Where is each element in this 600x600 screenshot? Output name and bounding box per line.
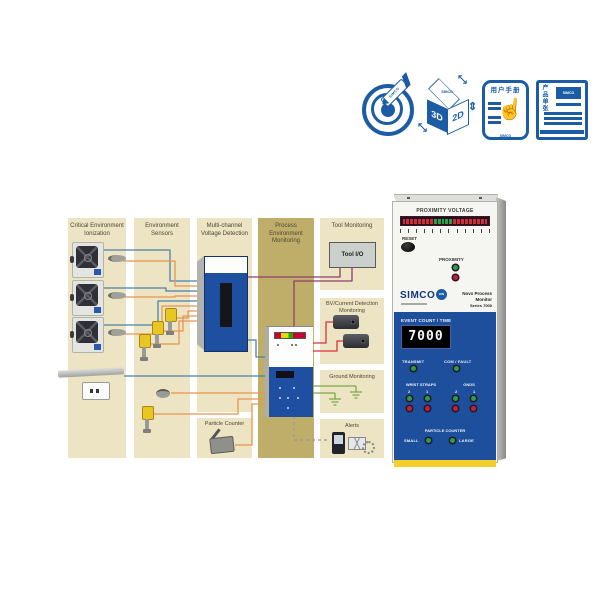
small-label: SMALL (404, 438, 419, 443)
column-header: Tool Monitoring (320, 223, 384, 231)
phone-screen (334, 435, 343, 444)
front-panel: PROXIMITY VOLTAGE RESET PROXIMITY SIMCO … (392, 201, 498, 463)
model-name: Novx Process Monitor (446, 291, 492, 303)
monitor-led (277, 344, 279, 346)
bar-controller (82, 382, 110, 400)
particle-counter-device (209, 436, 235, 454)
column-header: Environment Sensors (134, 223, 190, 238)
particle-counter-panel-label: PARTICLE COUNTER (394, 428, 496, 433)
yellow-accent-stripe (394, 460, 496, 467)
monitor-led (287, 397, 289, 399)
wrist-strap-1-red-led (425, 406, 430, 411)
brand-subline (401, 303, 427, 305)
tower-top (205, 257, 247, 273)
ionizer-knob (70, 256, 74, 263)
transmit-label: TRANSMIT (402, 359, 424, 364)
remote-sensor (108, 329, 126, 336)
novx-process-monitor-product: PROXIMITY VOLTAGE RESET PROXIMITY SIMCO … (392, 194, 506, 466)
screw (407, 197, 410, 199)
fan-ionizer (72, 242, 104, 278)
ionizer-badge (94, 307, 101, 313)
controller-button (90, 389, 93, 393)
wrist-strap-2-green-led (407, 396, 412, 401)
column-header: Process Environment Monitoring (258, 223, 314, 246)
reset-label: RESET (402, 236, 417, 241)
wrist-strap-1-green-led (425, 396, 430, 401)
column-header: Multi-channel Voltage Detection (197, 223, 252, 238)
channel-2-label: 2 (455, 389, 457, 394)
tool-io-box: Tool I/O (329, 242, 376, 268)
monitor-led (279, 387, 281, 389)
monitor-led (287, 407, 289, 409)
proximity-red-led (453, 275, 458, 280)
wrist-strap-2-red-led (407, 406, 412, 411)
column-header: Critical Environment Ionization (68, 223, 126, 238)
monitor-led (279, 397, 281, 399)
sensor-base (153, 344, 161, 348)
gnd-1-green-led (471, 396, 476, 401)
sensor-base (143, 429, 151, 433)
fan-hub (84, 292, 92, 300)
bv-current-label: BV/Current Detection Monitoring (322, 301, 382, 315)
sensor-post (168, 321, 172, 331)
environment-sensor (151, 321, 163, 349)
sensor-cap (152, 321, 164, 335)
wrist-straps-label: WRIST STRAPS (400, 382, 442, 387)
sensor-post (155, 334, 159, 344)
ground-monitoring-label: Ground Monitoring (322, 374, 382, 381)
sensor-lens (350, 319, 356, 325)
proximity-green-led (453, 265, 458, 270)
ionizer-badge (94, 344, 101, 350)
fan-ionizer (72, 280, 104, 316)
sensor-base (166, 331, 174, 335)
bargraph-ticks (400, 229, 490, 233)
bv-current-sensor (343, 334, 369, 348)
sensor-lens (360, 338, 366, 344)
proximity-label: PROXIMITY (439, 257, 464, 262)
environment-sensor (138, 334, 150, 362)
com-fault-led (454, 366, 459, 371)
monitor-display (276, 371, 294, 378)
voltage-tower-side (197, 256, 204, 350)
brand-logo: SIMCO (400, 290, 435, 301)
transmit-led (411, 366, 416, 371)
event-count-label: EVENT COUNT / TIME (401, 318, 451, 323)
process-monitor-device (265, 326, 313, 417)
gnd-2-green-led (453, 396, 458, 401)
channel-2-label: 2 (408, 389, 410, 394)
voltage-detection-tower (204, 256, 248, 352)
fan-grille (76, 321, 98, 343)
tower-display (220, 283, 232, 327)
com-fault-label: COM / FAULT (444, 359, 471, 364)
screw (479, 197, 482, 199)
gear-icon (362, 441, 375, 454)
gnds-label: GNDS (450, 382, 488, 387)
environment-sensor (141, 406, 153, 434)
gnd-2-red-led (453, 406, 458, 411)
sensor-base (140, 357, 148, 361)
alerts-label: Alerts (322, 423, 382, 430)
sensor-post (145, 419, 149, 429)
fan-hub (84, 254, 92, 262)
monitor-led (297, 397, 299, 399)
monitor-led (291, 344, 293, 346)
remote-sensor (108, 292, 126, 299)
ionizer-knob (70, 294, 74, 301)
phone-icon (332, 432, 345, 454)
ionizer-badge (94, 269, 101, 275)
monitor-led (295, 344, 297, 346)
sensor-cap (142, 406, 154, 420)
fan-grille (76, 284, 98, 306)
environment-sensor (164, 308, 176, 336)
large-label: LARGE (459, 438, 474, 443)
proximity-bargraph (400, 216, 490, 226)
model-series: Series 7000 (446, 303, 492, 309)
controller-button (96, 389, 99, 393)
sensor-post (142, 347, 146, 357)
monitor-led-bar (274, 332, 306, 339)
fan-grille (76, 246, 98, 268)
bv-current-sensor (333, 315, 359, 329)
particle-counter-label: Particle Counter (199, 421, 250, 428)
monitor-led (293, 387, 295, 389)
remote-sensor (108, 255, 126, 262)
event-count-display: 7000 (401, 325, 451, 349)
lower-panel: EVENT COUNT / TIME 7000 TRANSMIT COM / F… (394, 312, 496, 460)
disc-sensor (156, 389, 170, 398)
model-name-block: Novx Process Monitor Series 7000 (446, 291, 492, 308)
proximity-voltage-label: PROXIMITY VOLTAGE (393, 208, 497, 214)
reset-button[interactable] (401, 242, 415, 252)
gnd-1-red-led (471, 406, 476, 411)
ionizer-knob (70, 331, 74, 338)
particle-small-led (426, 438, 431, 443)
fan-hub (84, 329, 92, 337)
sensor-cap (139, 334, 151, 348)
channel-1-label: 1 (426, 389, 428, 394)
particle-large-led (450, 438, 455, 443)
fan-ionizer (72, 317, 104, 353)
sensor-cap (165, 308, 177, 322)
channel-1-label: 1 (473, 389, 475, 394)
